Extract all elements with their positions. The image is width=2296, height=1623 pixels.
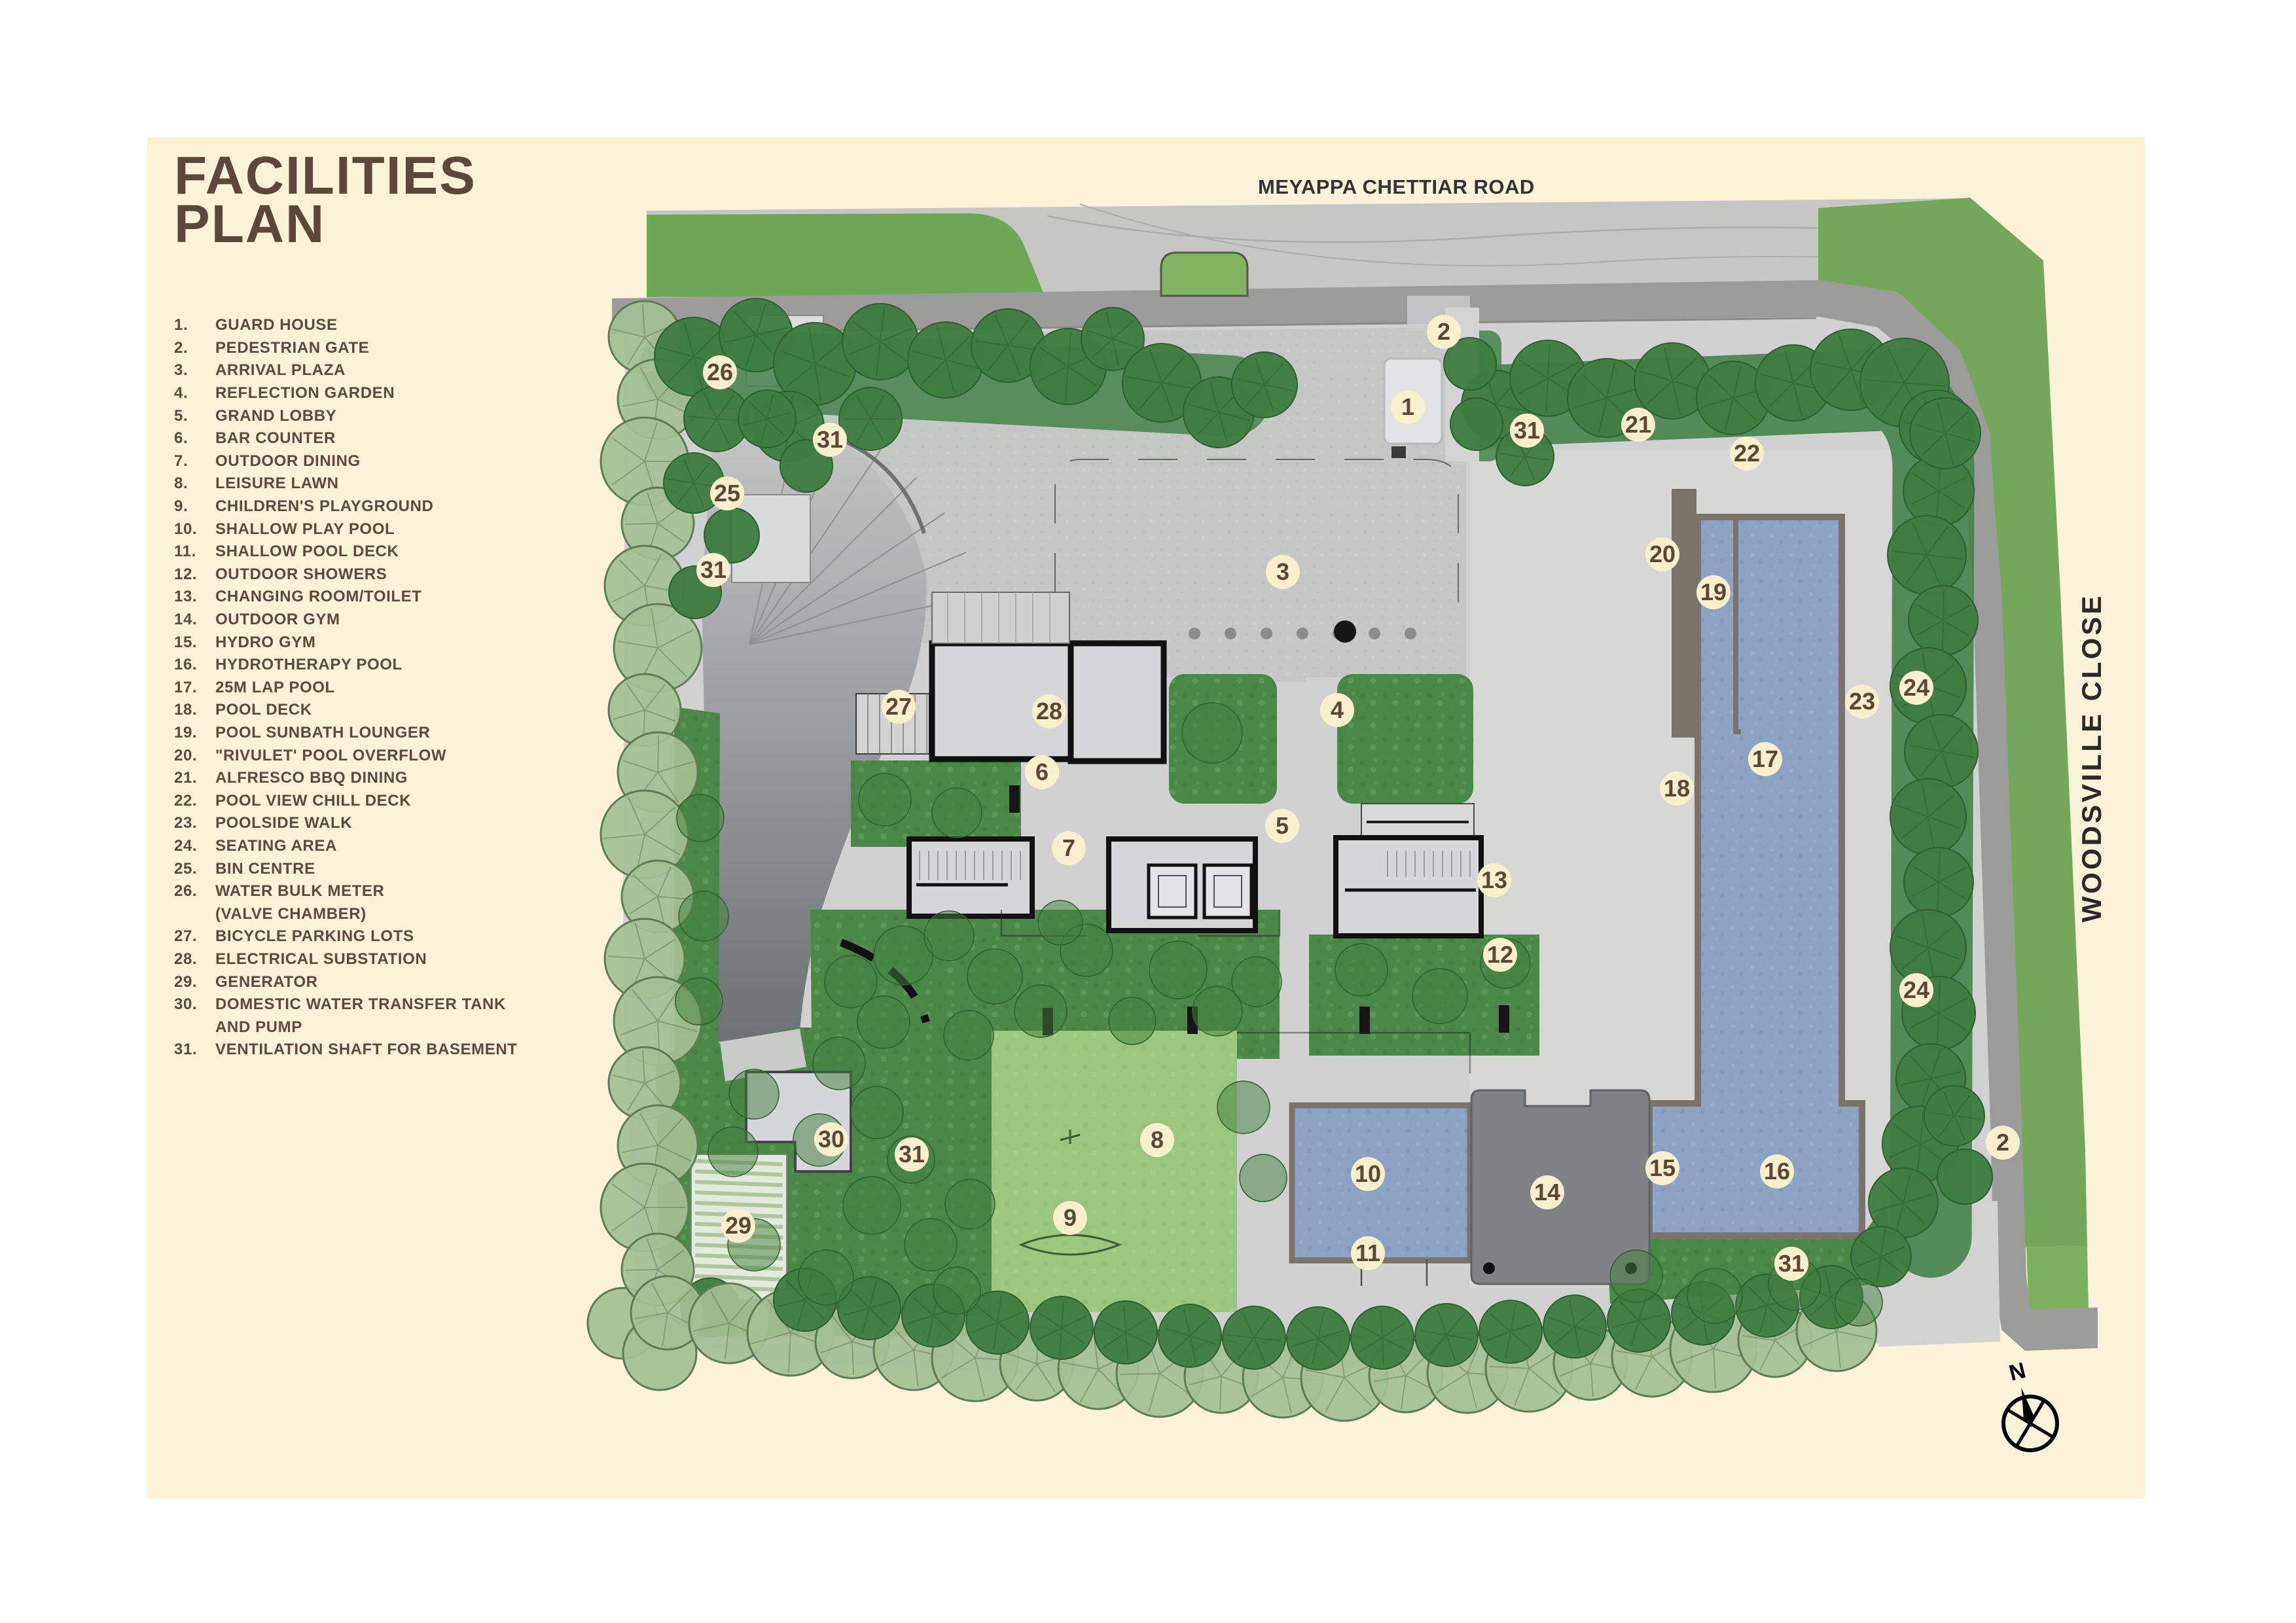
svg-text:29: 29 [725, 1212, 751, 1239]
svg-text:N: N [2007, 1358, 2028, 1386]
svg-text:31: 31 [899, 1141, 925, 1168]
svg-text:6: 6 [1035, 758, 1049, 785]
svg-text:11: 11 [1355, 1240, 1380, 1266]
svg-text:MEYAPPA CHETTIAR ROAD: MEYAPPA CHETTIAR ROAD [1258, 175, 1535, 198]
svg-text:16: 16 [1764, 1158, 1790, 1185]
svg-text:15: 15 [1649, 1154, 1676, 1181]
svg-text:31: 31 [1778, 1250, 1804, 1277]
svg-text:24: 24 [1903, 674, 1929, 701]
svg-text:30: 30 [818, 1126, 844, 1152]
svg-text:25: 25 [714, 480, 740, 507]
svg-text:20: 20 [1649, 541, 1676, 567]
svg-text:21: 21 [1625, 411, 1651, 438]
svg-text:19: 19 [1700, 579, 1727, 605]
svg-text:13: 13 [1481, 866, 1507, 893]
svg-text:3: 3 [1276, 558, 1289, 585]
svg-text:28: 28 [1036, 698, 1062, 724]
svg-text:27: 27 [886, 693, 912, 720]
svg-text:26: 26 [707, 359, 733, 385]
svg-text:14: 14 [1534, 1179, 1560, 1205]
svg-text:10: 10 [1355, 1160, 1381, 1187]
svg-text:5: 5 [1276, 812, 1289, 839]
svg-text:7: 7 [1062, 834, 1075, 861]
svg-text:18: 18 [1664, 775, 1690, 802]
svg-text:12: 12 [1487, 941, 1513, 968]
svg-text:17: 17 [1752, 745, 1778, 772]
svg-text:1: 1 [1401, 393, 1414, 420]
svg-text:31: 31 [1514, 417, 1540, 444]
svg-text:22: 22 [1734, 440, 1760, 467]
svg-text:4: 4 [1331, 696, 1344, 723]
svg-text:9: 9 [1064, 1204, 1077, 1231]
svg-text:31: 31 [817, 426, 843, 453]
svg-text:23: 23 [1849, 688, 1875, 715]
svg-text:24: 24 [1903, 976, 1929, 1003]
svg-text:WOODSVILLE CLOSE: WOODSVILLE CLOSE [2076, 594, 2107, 923]
svg-text:8: 8 [1151, 1126, 1164, 1153]
svg-text:31: 31 [700, 556, 726, 583]
svg-text:2: 2 [1996, 1129, 2009, 1156]
svg-text:2: 2 [1437, 318, 1450, 345]
